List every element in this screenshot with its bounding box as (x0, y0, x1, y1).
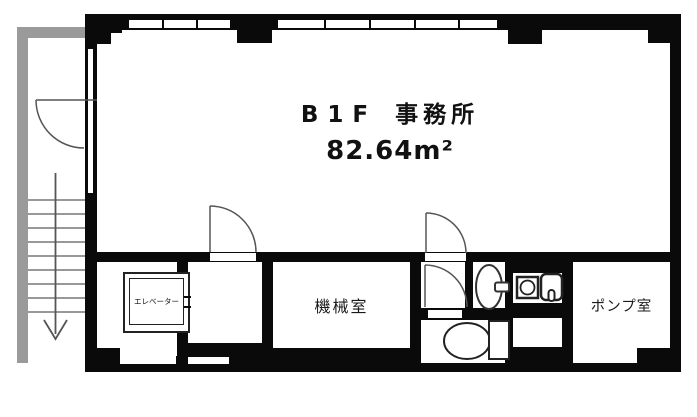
exterior-gray-wall-vertical (17, 27, 28, 363)
wall-niche-bottom (513, 303, 562, 318)
window-strip-right (277, 19, 498, 29)
window-strip-left (128, 19, 231, 29)
hall-floor-extension (120, 356, 176, 364)
floor-label: B1F (301, 102, 377, 128)
entrance-opening (86, 49, 95, 193)
elevator-label: エレベーター (134, 296, 179, 307)
toilet-icon (444, 321, 509, 359)
door-opening-toilet-vestibule (424, 252, 467, 262)
wall-niche-floor (513, 347, 562, 357)
elevator-car: エレベーター (129, 278, 184, 325)
stairs-down-arrow-icon (44, 173, 67, 339)
stairs-icon (28, 200, 85, 312)
page-title: B1F事務所 (210, 95, 570, 129)
wall-niche-top (513, 262, 562, 273)
machine-room-label: 機械室 (273, 262, 410, 348)
pump-room-label: ポンプ室 (573, 262, 670, 348)
wall-pump-notch (637, 348, 670, 357)
wc-floor-extension (421, 356, 505, 363)
elevator-tick-bottom (184, 306, 191, 308)
hand-sink-icon (541, 274, 562, 301)
area-label: 82.64m² (210, 136, 570, 166)
door-opening-wc (427, 309, 463, 319)
door-opening-anteroom (209, 252, 257, 262)
drain-pan-icon (517, 277, 538, 298)
wall-machine-floor (273, 348, 412, 357)
door-swing-toilet-vestibule-icon (426, 213, 466, 253)
wall-office-separator (97, 252, 681, 262)
elevator-tick-top (184, 296, 191, 298)
wall-anteroom-floor (177, 343, 265, 357)
floor-plan: エレベーター B1F事務所 82.64m² 機械室 ポンプ室 (0, 0, 697, 417)
window-mullion (369, 20, 371, 28)
window-mullion (162, 20, 164, 28)
wall-right (670, 14, 681, 372)
window-mullion (458, 20, 460, 28)
wall-bottom-left-step (85, 348, 120, 357)
door-swing-wc-icon (425, 265, 467, 307)
window-mullion (324, 20, 326, 28)
wall-vestibule-basin (465, 262, 473, 308)
window-mullion (196, 20, 198, 28)
wall-pier-top-right (508, 14, 542, 44)
pump-floor-extension (573, 356, 637, 363)
window-mullion (414, 20, 416, 28)
bottom-wall-opening (188, 357, 229, 364)
wall-niche-pump (562, 252, 573, 372)
door-swing-anteroom-icon (210, 206, 256, 252)
exterior-gray-wall-horizontal (17, 27, 86, 38)
wall-basin-niche (505, 262, 513, 372)
use-label: 事務所 (395, 102, 479, 128)
wall-pier-top-mid (237, 14, 272, 43)
elevator-shaft: エレベーター (123, 272, 190, 333)
